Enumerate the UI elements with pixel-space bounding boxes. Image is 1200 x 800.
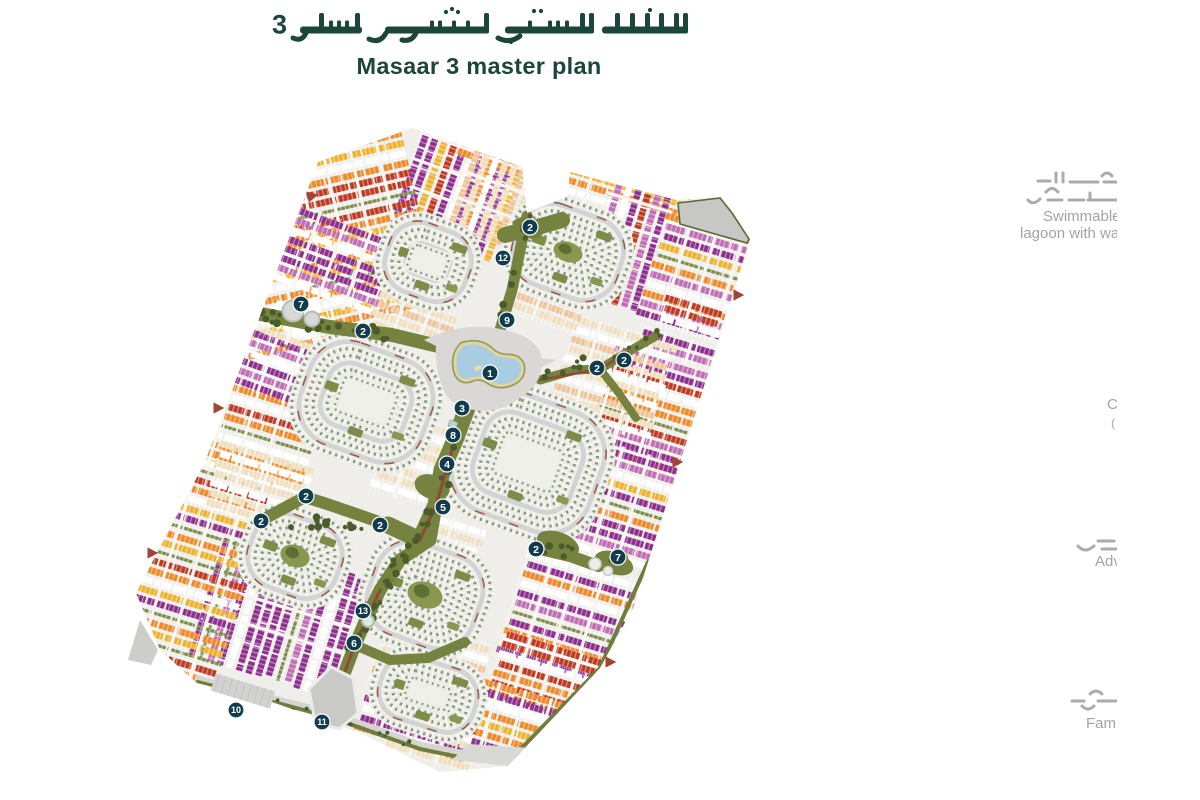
svg-text:2: 2 (621, 355, 627, 367)
svg-text:10: 10 (231, 705, 241, 715)
svg-text:9: 9 (504, 315, 510, 327)
svg-text:12: 12 (498, 253, 508, 263)
svg-text:2: 2 (258, 516, 264, 528)
svg-text:11: 11 (317, 717, 327, 727)
svg-text:1: 1 (487, 368, 493, 380)
svg-text:7: 7 (615, 552, 621, 564)
svg-text:8: 8 (450, 430, 456, 442)
svg-text:6: 6 (351, 638, 357, 650)
svg-text:3: 3 (459, 403, 465, 415)
svg-text:7: 7 (298, 299, 304, 311)
svg-text:2: 2 (360, 326, 366, 338)
svg-text:2: 2 (594, 363, 600, 375)
svg-text:2: 2 (527, 222, 533, 234)
svg-text:4: 4 (444, 459, 450, 471)
svg-text:2: 2 (303, 491, 309, 503)
svg-text:13: 13 (358, 606, 368, 616)
svg-text:2: 2 (533, 544, 539, 556)
svg-text:3: 3 (272, 10, 287, 40)
svg-text:5: 5 (440, 502, 446, 514)
svg-text:2: 2 (377, 520, 383, 532)
